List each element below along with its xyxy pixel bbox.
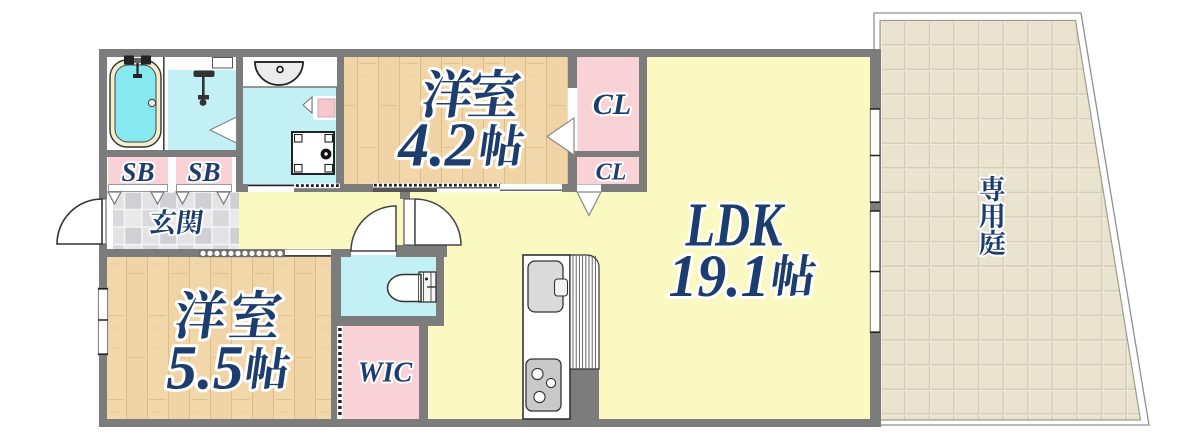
svg-text:19.1: 19.1 (669, 243, 770, 309)
svg-text:CL: CL (596, 160, 627, 186)
svg-text:5.5: 5.5 (166, 335, 244, 403)
svg-text:WIC: WIC (358, 358, 413, 389)
svg-text:4.2: 4.2 (397, 112, 476, 180)
svg-text:CL: CL (593, 88, 631, 121)
svg-text:SB: SB (121, 157, 154, 187)
svg-text:SB: SB (187, 157, 220, 187)
